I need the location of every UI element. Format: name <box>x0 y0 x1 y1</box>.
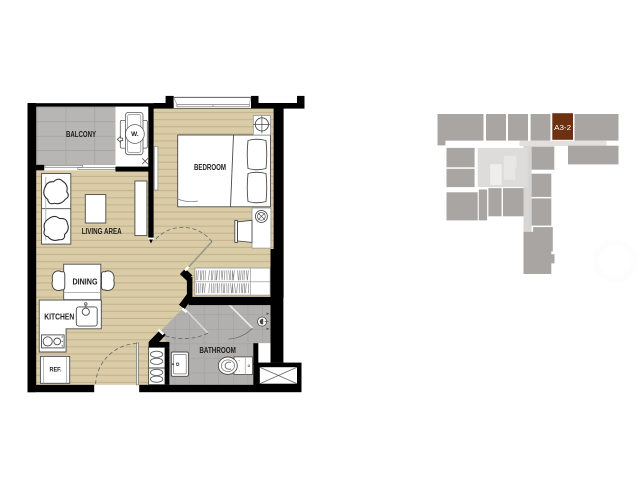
svg-text:BEDROOM: BEDROOM <box>194 163 226 172</box>
svg-text:REF.: REF. <box>50 366 62 373</box>
svg-text:LIVING AREA: LIVING AREA <box>82 227 122 236</box>
svg-text:A3-2: A3-2 <box>554 123 571 132</box>
svg-text:BATHROOM: BATHROOM <box>199 346 236 355</box>
svg-text:BALCONY: BALCONY <box>66 130 96 139</box>
svg-text:W.: W. <box>131 131 139 138</box>
svg-text:KITCHEN: KITCHEN <box>44 312 74 321</box>
svg-text:DINING: DINING <box>73 277 98 286</box>
